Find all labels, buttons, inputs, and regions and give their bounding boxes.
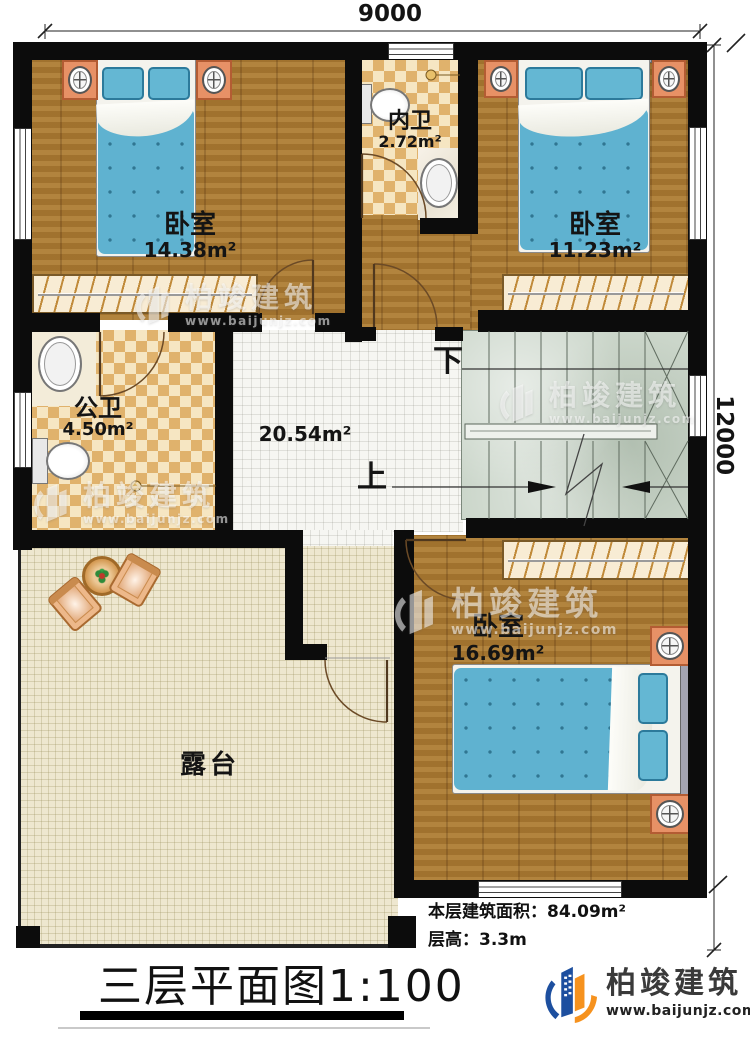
- window-top: [388, 43, 454, 59]
- area-label-bedroom-br: 16.69m²: [418, 643, 578, 664]
- window-right-bedroom: [689, 127, 706, 240]
- floor-height-text: 层高：3.3m: [428, 925, 527, 950]
- title-underline: [80, 1011, 404, 1020]
- room-label-public-bath: 公卫: [28, 396, 168, 421]
- terrace-wall-left: [18, 548, 21, 948]
- wall-hall-north-a: [345, 327, 376, 341]
- pillow: [585, 67, 643, 100]
- lamp-icon: [656, 800, 684, 828]
- window-left-bedroom: [14, 128, 31, 240]
- sink: [38, 336, 82, 392]
- brand-block: 柏竣建筑 www.baijunjz.com: [540, 962, 750, 1026]
- nightstand: [652, 60, 686, 98]
- terrace-wall-bottom: [18, 944, 400, 948]
- wall-bedroom-br-west: [394, 530, 414, 898]
- stairs-up-label: 上: [352, 462, 392, 494]
- wardrobe-rail: [508, 293, 684, 295]
- wall-inner-bath-south: [420, 218, 478, 234]
- floor-plan-canvas: 9000 12000 卧室 14.38m² 内卫 2.72m² 卧室 11.23…: [0, 0, 750, 1039]
- area-label-bedroom-tl: 14.38m²: [120, 240, 260, 261]
- pillow: [638, 730, 668, 781]
- bed-bottom-right: [452, 664, 688, 794]
- dimension-top-label: 9000: [340, 2, 440, 26]
- dimension-right-label: 12000: [712, 395, 736, 459]
- area-label-inner-bath: 2.72m²: [362, 134, 458, 151]
- room-label-terrace: 露台: [150, 752, 270, 779]
- wall-exterior-left: [13, 42, 32, 550]
- pillow: [525, 67, 583, 100]
- wardrobe-rail: [38, 294, 252, 296]
- pillow: [148, 67, 190, 100]
- area-label-public-bath: 4.50m²: [28, 421, 168, 440]
- pillow: [102, 67, 144, 100]
- brand-url: www.baijunjz.com: [606, 1003, 750, 1019]
- bed-duvet: [454, 668, 632, 790]
- pillow: [638, 673, 668, 724]
- wall-bedroom-tr-south: [478, 310, 689, 332]
- wall-inner-bath-east: [458, 60, 478, 234]
- brand-logo-icon: [540, 962, 598, 1026]
- brand-name: 柏竣建筑: [606, 969, 750, 999]
- nightstand: [62, 60, 98, 100]
- title-thin-line: [58, 1027, 430, 1029]
- terrace-corner-post-left: [16, 926, 40, 948]
- wall-inner-bath-west: [345, 60, 362, 342]
- wall-corridor-south-nub: [285, 644, 327, 660]
- room-label-bedroom-tr: 卧室: [525, 212, 665, 239]
- wardrobe-bottom-right: [502, 540, 690, 580]
- wall-bedroom-tl-south-a: [13, 313, 100, 332]
- nightstand: [650, 794, 690, 834]
- lamp-icon: [68, 66, 92, 94]
- window-bottom-bedroom: [478, 881, 622, 897]
- wardrobe-top-right: [502, 274, 690, 312]
- wall-bedroom-tl-south-c: [315, 313, 349, 332]
- room-label-bedroom-br: 卧室: [428, 614, 568, 641]
- wardrobe-rail: [508, 560, 684, 562]
- area-label-hall: 20.54m²: [235, 424, 375, 445]
- nightstand: [650, 626, 690, 666]
- wall-public-bath-east: [215, 332, 233, 532]
- lamp-icon: [656, 632, 684, 660]
- plant-icon: [93, 567, 111, 585]
- wall-stairs-south: [466, 518, 689, 538]
- sink: [420, 158, 458, 208]
- lamp-icon: [202, 66, 226, 94]
- room-label-bedroom-tl: 卧室: [120, 212, 260, 239]
- floor-area-text: 本层建筑面积：84.09m²: [428, 897, 626, 922]
- area-label-bedroom-tr: 11.23m²: [525, 240, 665, 261]
- window-right-stairs: [689, 375, 706, 437]
- stairs-down-label: 下: [428, 346, 468, 378]
- page-title: 三层平面图1:100: [98, 950, 465, 1014]
- terrace-corner-post-right: [388, 916, 416, 948]
- wall-hall-north-b: [435, 327, 463, 341]
- lamp-icon: [490, 66, 512, 92]
- lamp-icon: [658, 66, 680, 92]
- wall-bedroom-tl-south-b: [168, 313, 262, 332]
- nightstand: [484, 60, 518, 98]
- stairs-area: [461, 330, 689, 520]
- wall-terrace-north: [13, 530, 303, 548]
- room-label-inner-bath: 内卫: [362, 110, 458, 133]
- wardrobe-top-left: [32, 274, 258, 314]
- toilet-bowl: [46, 442, 90, 480]
- wall-exterior-top: [13, 42, 707, 60]
- nightstand: [196, 60, 232, 100]
